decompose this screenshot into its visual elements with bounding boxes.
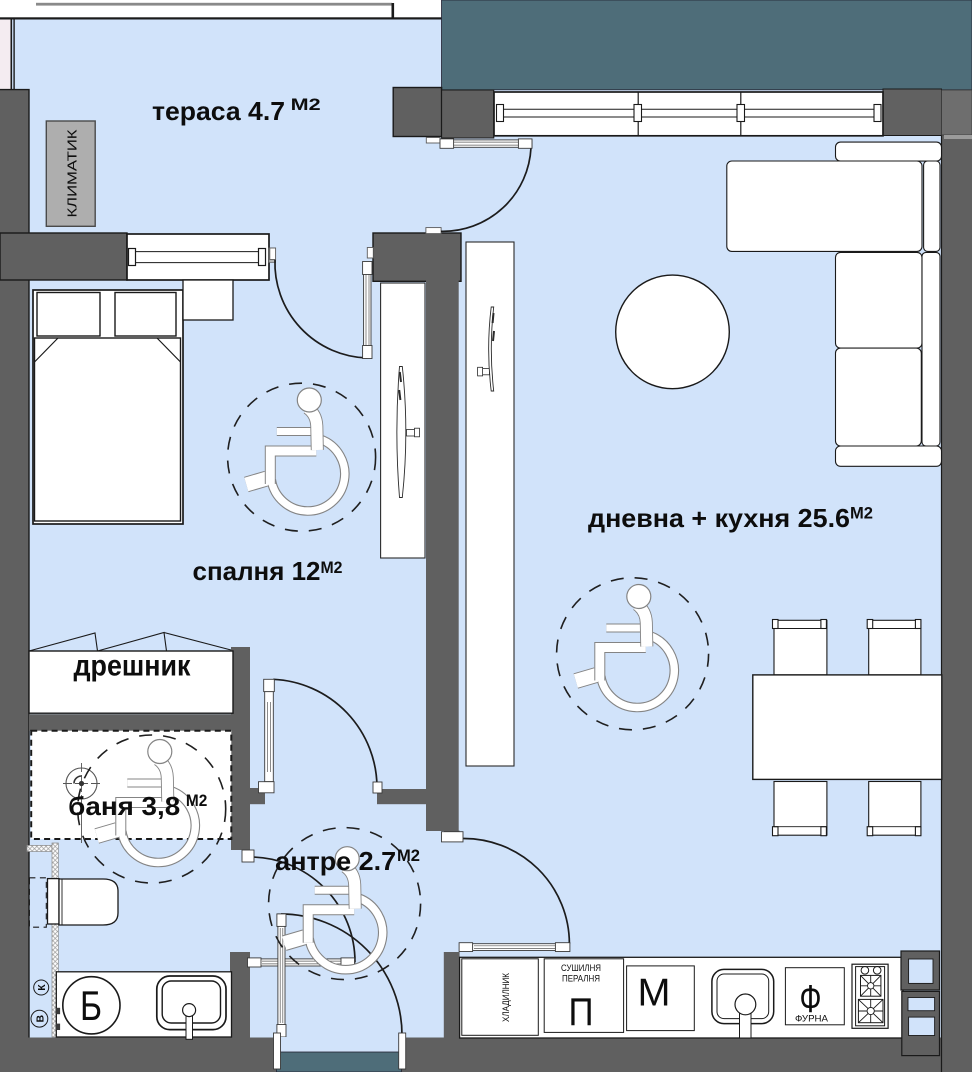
svg-text:дрешник: дрешник <box>74 650 192 683</box>
svg-text:П: П <box>569 992 594 1035</box>
svg-text:М: М <box>638 972 671 1015</box>
svg-text:М2: М2 <box>321 558 343 577</box>
svg-text:М2: М2 <box>397 846 420 865</box>
svg-text:М2: М2 <box>291 95 321 114</box>
svg-text:антре 2.7: антре 2.7 <box>275 846 396 876</box>
svg-text:тераса 4.7: тераса 4.7 <box>152 96 285 126</box>
svg-text:ХЛАДИЛНИК: ХЛАДИЛНИК <box>501 973 512 1022</box>
svg-text:баня 3,8: баня 3,8 <box>68 791 180 821</box>
svg-text:В: В <box>34 1014 46 1022</box>
svg-text:М2: М2 <box>186 791 207 810</box>
svg-text:К: К <box>36 984 48 991</box>
svg-text:дневна + кухня 25.6: дневна + кухня 25.6 <box>588 503 850 533</box>
svg-text:М2: М2 <box>850 504 873 523</box>
svg-text:ФУРНА: ФУРНА <box>795 1013 829 1024</box>
svg-text:СУШИЛНЯ: СУШИЛНЯ <box>561 963 601 974</box>
svg-text:спалня 12: спалня 12 <box>193 556 321 586</box>
svg-text:Б: Б <box>80 982 102 1029</box>
svg-text:ПЕРАЛНЯ: ПЕРАЛНЯ <box>562 974 600 985</box>
svg-text:КЛИМАТИК: КЛИМАТИК <box>65 129 80 218</box>
